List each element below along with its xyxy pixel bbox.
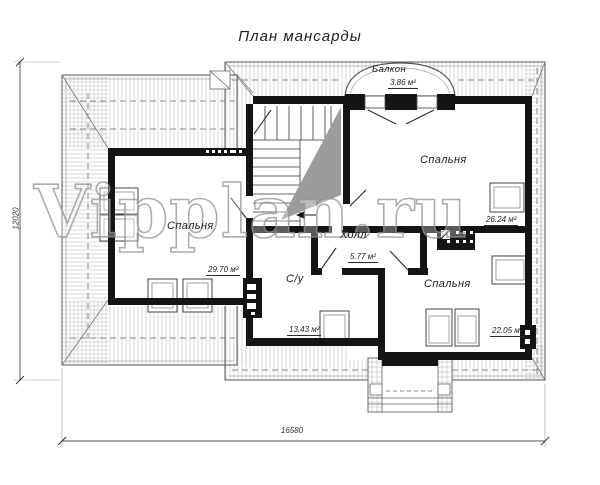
room-label-bathroom: С/у <box>286 273 304 285</box>
dimension-width: 16580 <box>262 426 322 435</box>
room-area-balcony: 3.86 м² <box>388 78 418 89</box>
window-bottom-left-1 <box>148 279 177 312</box>
dimension-height: 12020 <box>12 189 21 249</box>
window-left-1 <box>100 188 138 214</box>
window-bottom-left-2 <box>183 279 212 312</box>
window-bedroom-bottom-right <box>492 256 528 284</box>
roof-vent-icon <box>210 71 230 89</box>
room-label-bedroom-top-right: Спальня <box>420 154 467 166</box>
window-left-2 <box>100 215 138 241</box>
bed-2 <box>455 309 479 346</box>
window-bedroom-top-right <box>490 183 524 212</box>
room-area-bedroom-top-right: 26.24 м² <box>484 215 518 226</box>
floor-plan-drawing <box>0 0 600 485</box>
room-label-bedroom-left: Спальня <box>167 220 214 232</box>
floor-plan-page: Vipplan.ru План мансарды Балкон 3.86 м² … <box>0 0 600 485</box>
room-label-balcony: Балкон <box>372 64 406 75</box>
bed-1 <box>426 309 452 346</box>
room-label-hall: Холл <box>340 229 367 241</box>
room-area-bathroom: 13.43 м² <box>287 325 321 336</box>
porch <box>368 354 452 412</box>
page-title: План мансарды <box>230 28 370 45</box>
room-label-bedroom-bottom-right: Спальня <box>424 278 471 290</box>
room-area-hall: 5.77 м² <box>348 252 378 263</box>
room-area-bedroom-left: 29.70 м² <box>206 265 240 276</box>
room-area-bedroom-bottom-right: 22.05 м² <box>490 326 524 337</box>
